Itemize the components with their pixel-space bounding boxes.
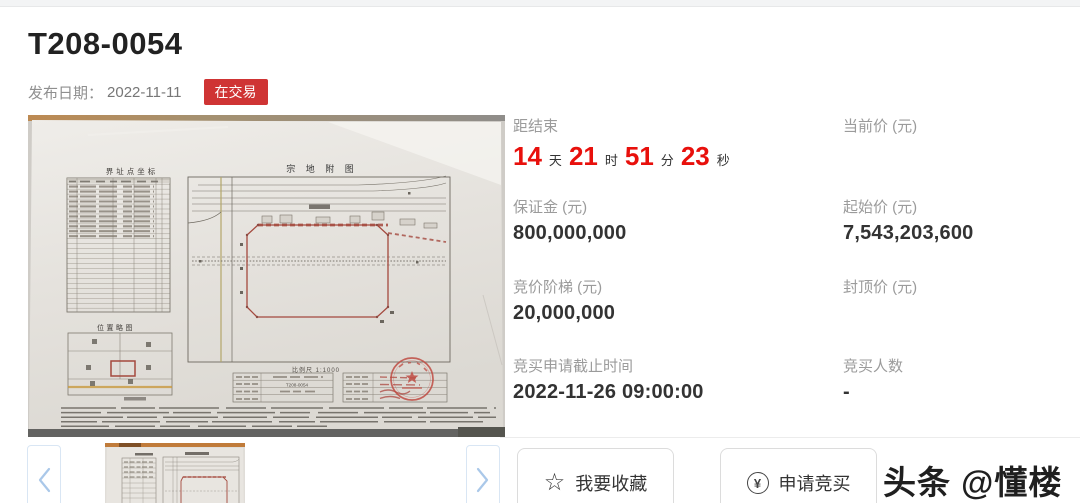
favorite-button-label: 我要收藏 (575, 470, 647, 496)
document-thumbnail-image (105, 443, 245, 503)
countdown-hours: 21 (569, 141, 598, 172)
star-outline-icon: ☆ (544, 471, 566, 495)
parcel-map-title: 宗 地 附 图 (286, 163, 358, 174)
apply-bid-button-label: 申请竞买 (779, 470, 851, 496)
publish-date-value: 2022-11-11 (107, 84, 182, 101)
carousel-prev-button[interactable] (27, 445, 61, 503)
bid-increment-label: 竞价阶梯 (元) (513, 276, 602, 297)
publish-date-label: 发布日期： (28, 82, 103, 103)
plot-code-text: T208-0054 (286, 383, 309, 388)
current-price-label: 当前价 (元) (843, 115, 917, 136)
bid-increment-value: 20,000,000 (513, 302, 615, 325)
apply-bid-button[interactable]: ¥ 申请竞买 (720, 448, 877, 503)
deposit-label: 保证金 (元) (513, 196, 587, 217)
deposit-value: 800,000,000 (513, 222, 626, 245)
boundary-coordinate-table: 界址点坐标 (67, 166, 170, 312)
carousel-next-button[interactable] (466, 445, 500, 503)
page-title: T208-0054 (28, 26, 182, 62)
countdown-days: 14 (513, 141, 542, 172)
document-thumbnail[interactable] (105, 443, 245, 503)
top-divider-bar (0, 0, 1080, 7)
countdown-minutes-unit: 分 (661, 150, 674, 169)
apply-deadline-label: 竞买申请截止时间 (513, 355, 633, 376)
parcel-document-photo[interactable]: 界址点坐标 宗 地 附 图 (28, 115, 505, 437)
coord-table-title: 界址点坐标 (106, 166, 159, 176)
bidder-count-label: 竞买人数 (843, 355, 903, 376)
countdown-label: 距结束 (513, 115, 558, 136)
parcel-document-illustration: 界址点坐标 宗 地 附 图 (28, 115, 505, 437)
chevron-left-icon (36, 467, 52, 493)
countdown-minutes: 51 (625, 141, 654, 172)
start-price-label: 起始价 (元) (843, 196, 917, 217)
auction-detail-page: T208-0054 发布日期： 2022-11-11 在交易 (0, 0, 1080, 503)
panel-divider (500, 437, 1080, 438)
status-badge: 在交易 (204, 79, 268, 105)
chevron-right-icon (475, 467, 491, 493)
yen-circle-icon: ¥ (747, 472, 769, 494)
toutiao-watermark: 头条 @懂楼姐 (883, 456, 1080, 503)
start-price-value: 7,543,203,600 (843, 222, 974, 245)
publish-row: 发布日期： 2022-11-11 在交易 (28, 80, 268, 104)
countdown-hours-unit: 时 (605, 150, 618, 169)
apply-deadline-value: 2022-11-26 09:00:00 (513, 381, 704, 404)
favorite-button[interactable]: ☆ 我要收藏 (517, 448, 674, 503)
cap-price-label: 封顶价 (元) (843, 276, 917, 297)
countdown-seconds-unit: 秒 (717, 150, 730, 169)
bidder-count-value: - (843, 381, 850, 404)
countdown-seconds: 23 (681, 141, 710, 172)
location-sketch-title: 位置略图 (97, 323, 135, 332)
countdown-days-unit: 天 (549, 150, 562, 169)
road-name-label-smudge (309, 205, 330, 210)
countdown-timer: 14 天 21 时 51 分 23 秒 (513, 141, 737, 172)
